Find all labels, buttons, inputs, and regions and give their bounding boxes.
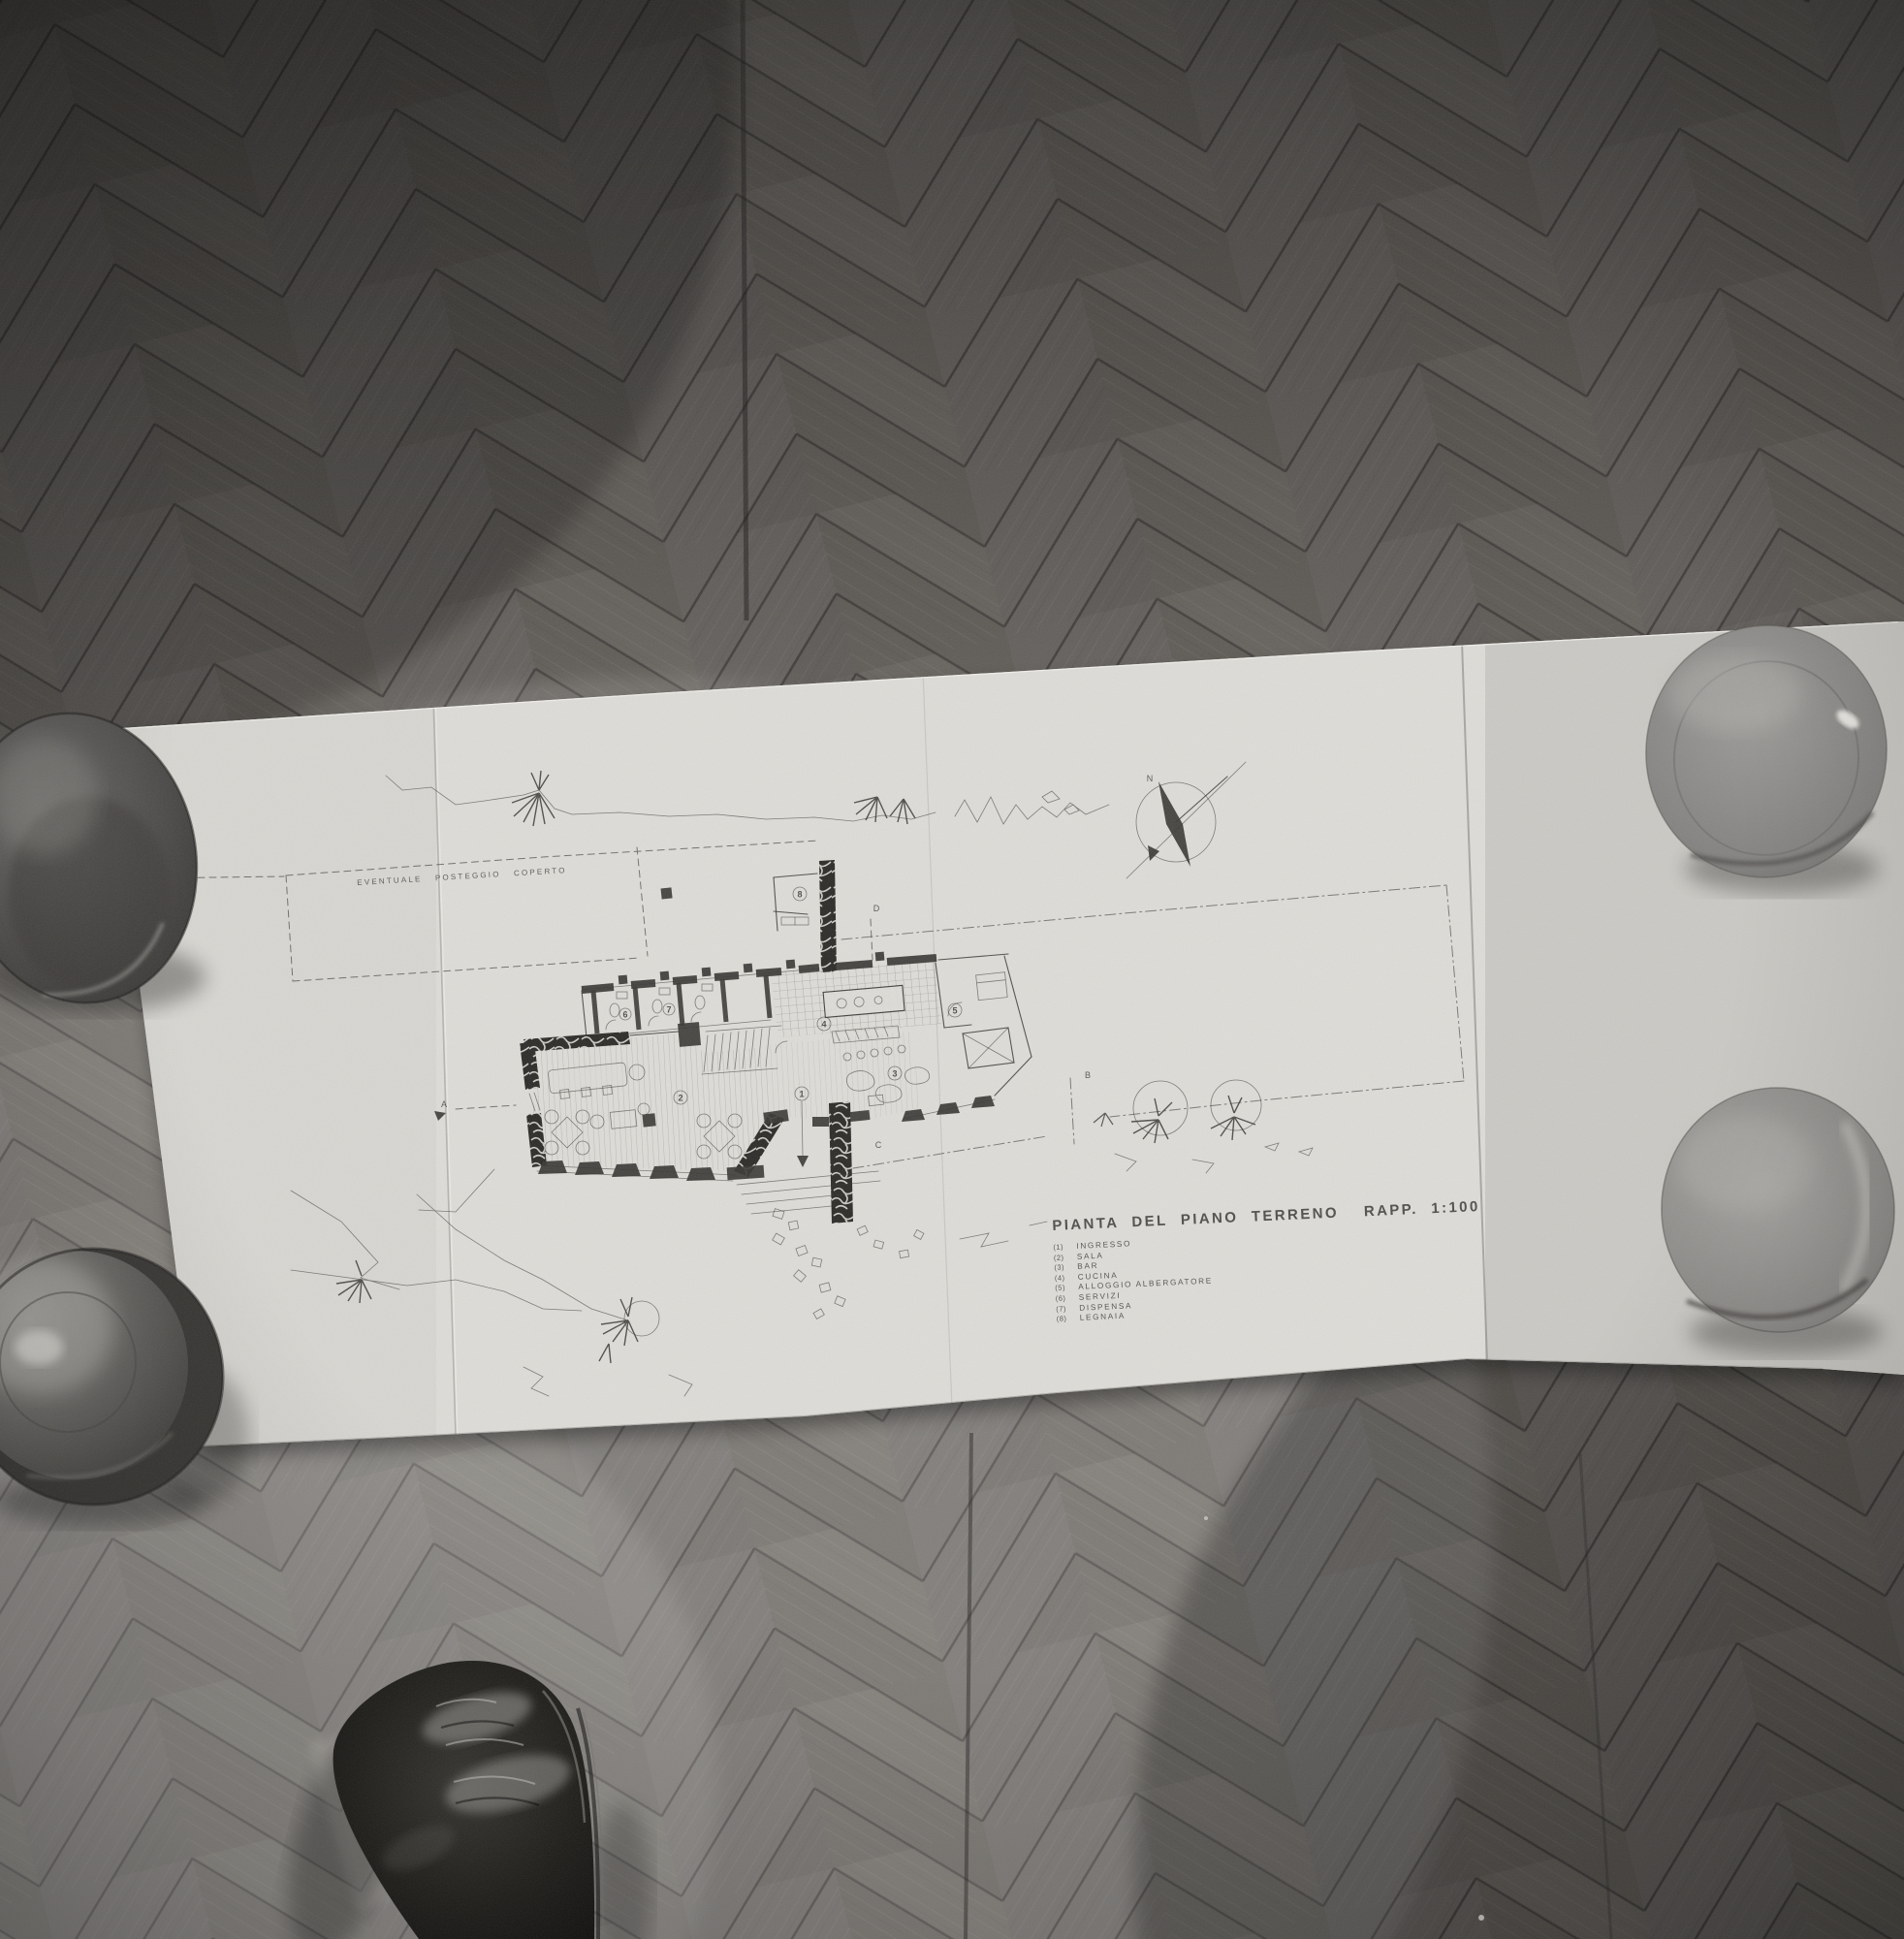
photo-floorplan-on-parquet: N <box>0 0 1904 1939</box>
photo-scene: N <box>0 0 1904 1939</box>
vignette <box>0 0 1904 1939</box>
title-block: PIANTA DEL PIANO TERRENORAPP. 1:100 (1)I… <box>1052 1194 1560 1324</box>
